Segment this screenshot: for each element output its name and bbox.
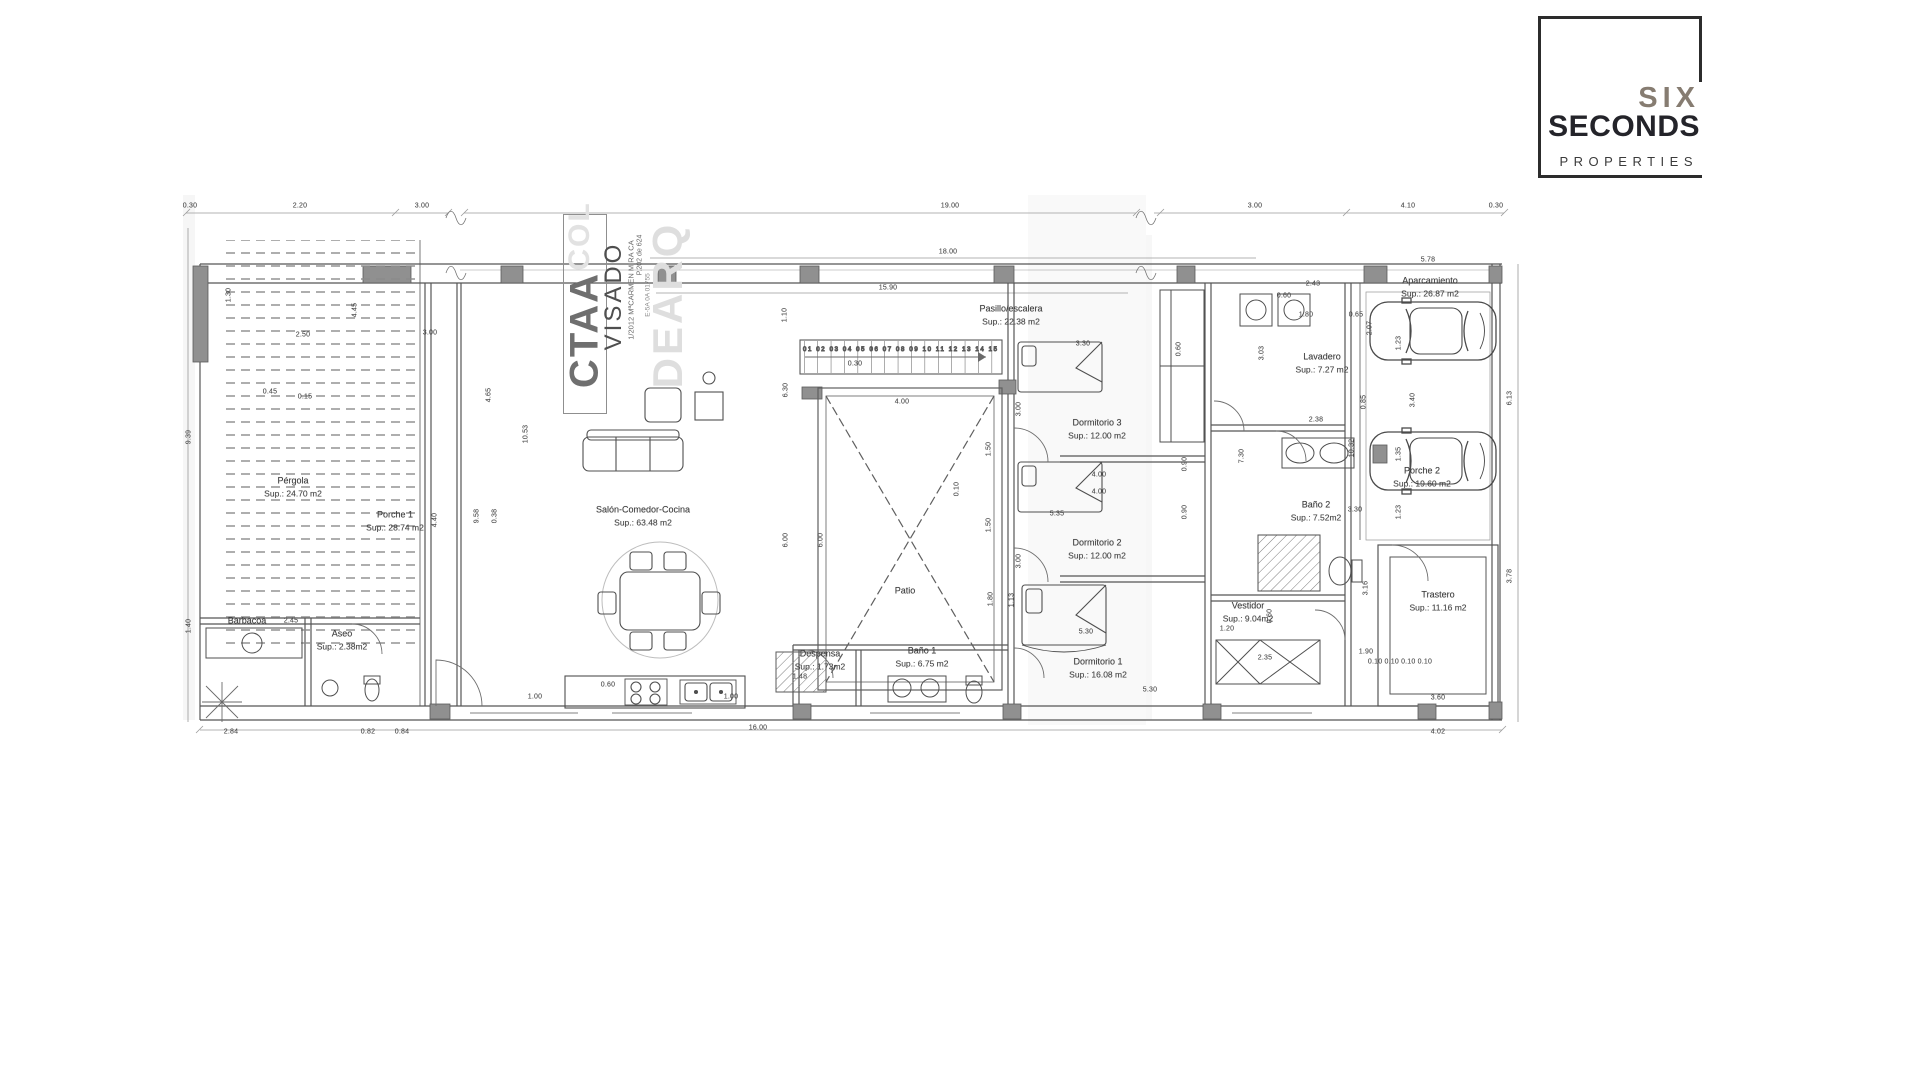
dimension-label: 1.50 — [986, 518, 993, 532]
dimension-label: 1.00 — [724, 694, 738, 701]
dimension-label: 2.43 — [1306, 281, 1320, 288]
dimension-label: 3.60 — [1431, 695, 1445, 702]
room-label: Baño 1Sup.: 6.75 m2 — [896, 644, 949, 669]
dimension-label: 1.23 — [1396, 336, 1403, 350]
dimension-label: 0.10 0.10 0.10 0.10 — [1368, 659, 1432, 666]
dimension-label: 1.90 — [1359, 649, 1373, 656]
room-label: Dormitorio 2Sup.: 12.00 m2 — [1068, 536, 1126, 561]
room-label: Barbacoa — [228, 614, 267, 627]
dimension-label: 10.32 — [1349, 439, 1356, 458]
dimension-label: 4.40 — [432, 513, 439, 527]
dimension-label: 1.35 — [1396, 447, 1403, 461]
dimension-label: 0.30 — [183, 203, 197, 210]
room-label: Porche 2Sup.: 19.60 m2 — [1393, 464, 1451, 489]
dimension-label: 1.00 — [528, 694, 542, 701]
room-label: Dormitorio 1Sup.: 16.08 m2 — [1069, 655, 1127, 680]
dimension-label: 0.60 — [601, 682, 615, 689]
logo-frame — [1538, 175, 1702, 178]
dimension-label: 1.23 — [1396, 505, 1403, 519]
dimension-label: 16.00 — [749, 725, 768, 732]
dimension-label: 3.30 — [1076, 341, 1090, 348]
dimension-label: 7.30 — [1239, 449, 1246, 463]
dimension-label: 4.00 — [895, 399, 909, 406]
dimension-label: 5.78 — [1421, 257, 1435, 264]
dimension-label: 3.00 — [415, 203, 429, 210]
room-label: Pasillo/escaleraSup.: 22.38 m2 — [979, 302, 1042, 327]
room-label: Salón-Comedor-CocinaSup.: 63.48 m2 — [596, 503, 690, 528]
dimension-label: 3.00 — [1248, 203, 1262, 210]
room-label: LavaderoSup.: 7.27 m2 — [1296, 350, 1349, 375]
room-label: Porche 1Sup.: 28.74 m2 — [366, 508, 424, 533]
dimension-label: 3.00 — [1016, 402, 1023, 416]
dimension-label: 1.80 — [988, 592, 995, 606]
dimension-label: 6.00 — [783, 533, 790, 547]
dimension-label: 0.15 — [298, 394, 312, 401]
dimension-label: 3.40 — [1410, 393, 1417, 407]
dimension-label: 2.50 — [296, 332, 310, 339]
dimension-label: 1.20 — [1220, 626, 1234, 633]
room-label: TrasteroSup.: 11.16 m2 — [1409, 588, 1466, 613]
dimension-label: 4.10 — [1401, 203, 1415, 210]
room-label: Baño 2Sup.: 7.52m2 — [1291, 498, 1342, 523]
dimension-label: 0.60 — [1176, 342, 1183, 356]
dimension-label: 9.58 — [474, 509, 481, 523]
dimension-label: 3.78 — [1507, 569, 1514, 583]
dimension-label: 3.00 — [423, 330, 437, 337]
logo-frame — [1699, 16, 1702, 82]
dimension-label: 2.20 — [293, 203, 307, 210]
dimension-label: 18.00 — [939, 249, 958, 256]
dimension-label: 2.84 — [224, 729, 238, 736]
dimension-label: 3.00 — [1016, 554, 1023, 568]
logo-frame — [1538, 16, 1702, 19]
dimension-label: 1.50 — [986, 442, 993, 456]
dimension-label: 2.38 — [1309, 417, 1323, 424]
dimension-label: 0.60 — [1277, 293, 1291, 300]
dimension-label: 4.00 — [1092, 472, 1106, 479]
dimension-label: 1.48 — [793, 674, 807, 681]
dimension-label: 1.13 — [1009, 593, 1016, 607]
logo-text-properties: PROPERTIES — [1540, 154, 1698, 169]
room-label: DespensaSup.: 1.73m2 — [795, 647, 846, 672]
dimension-label: 0.84 — [395, 729, 409, 736]
dimension-label: 5.30 — [1079, 629, 1093, 636]
dimension-label: 6.30 — [783, 383, 790, 397]
room-label: AparcamientoSup.: 26.87 m2 — [1401, 274, 1459, 299]
logo-text-seconds: SECONDS — [1540, 110, 1700, 144]
dimension-label: 0.10 — [954, 482, 961, 496]
agency-logo: SIX SECONDS PROPERTIES — [1538, 16, 1706, 182]
dimension-label: 10.53 — [523, 425, 530, 444]
dimension-label: 15.90 — [879, 285, 898, 292]
dimension-label: 1.40 — [186, 619, 193, 633]
dimension-label: 2.45 — [284, 618, 298, 625]
dimension-label: 0.65 — [1349, 312, 1363, 319]
dimension-label: 0.82 — [361, 729, 375, 736]
dimension-label: 0.45 — [263, 389, 277, 396]
dimension-label: 4.45 — [352, 303, 359, 317]
room-label: PérgolaSup.: 24.70 m2 — [264, 474, 322, 499]
dimension-label: 0.85 — [1361, 395, 1368, 409]
dimension-label: 3.30 — [1348, 507, 1362, 514]
dimension-label: 0.30 — [848, 361, 862, 368]
dimension-label: 0.30 — [1489, 203, 1503, 210]
dimension-label: 9.39 — [186, 430, 193, 444]
dimension-label: 0.90 — [1182, 505, 1189, 519]
dimension-label: 6.00 — [818, 533, 825, 547]
dimension-label: 2.07 — [1367, 321, 1374, 335]
room-label: Patio — [895, 584, 916, 597]
dimension-label: 3.03 — [1259, 346, 1266, 360]
dimension-label: 5.30 — [1143, 687, 1157, 694]
dimension-label: 4.02 — [1431, 729, 1445, 736]
dimension-label: 0.90 — [1182, 457, 1189, 471]
dimension-label: 19.00 — [941, 203, 960, 210]
dimension-label: 1.10 — [782, 308, 789, 322]
dimension-label: 1.30 — [226, 288, 233, 302]
dimension-label: 3.16 — [1363, 581, 1370, 595]
dimension-label: 0.60 — [1267, 609, 1274, 623]
room-label: AseoSup.: 2.38m2 — [317, 627, 368, 652]
dimension-label: 5.35 — [1050, 511, 1064, 518]
dimension-label: 1.80 — [1299, 312, 1313, 319]
dimension-label: 4.00 — [1092, 489, 1106, 496]
floor-plan-page: 01 02 03 04 05 06 07 08 09 10 11 12 13 1… — [0, 0, 1920, 1080]
dimension-label: 0.38 — [492, 509, 499, 523]
room-label: Dormitorio 3Sup.: 12.00 m2 — [1068, 416, 1126, 441]
dimension-label: 6.13 — [1507, 391, 1514, 405]
dimension-label: 2.35 — [1258, 655, 1272, 662]
dimension-label: 4.65 — [486, 388, 493, 402]
